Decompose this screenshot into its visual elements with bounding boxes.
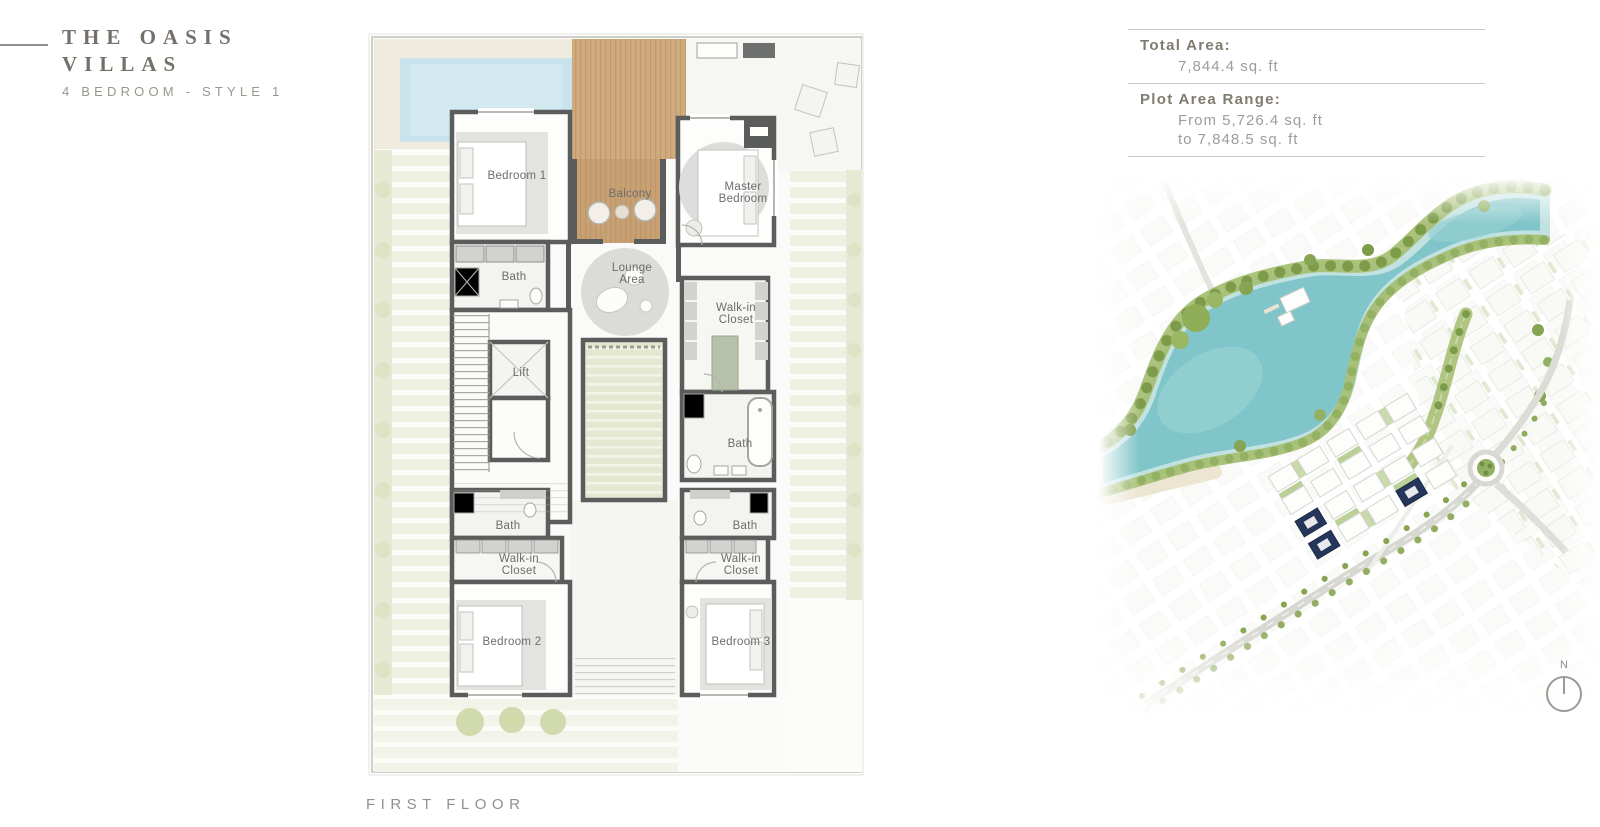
label-lift: Lift <box>513 367 530 379</box>
label-lounge-1: Lounge <box>612 262 652 274</box>
plot-area-label: Plot Area Range: <box>1140 91 1485 109</box>
floor-plan-svg: Bedroom 1 Balcony Master Bedroom Bath Lo… <box>368 33 868 777</box>
deck <box>572 39 686 159</box>
site-map-svg: N <box>1098 175 1600 715</box>
title-line1: THE OASIS <box>62 24 238 51</box>
floor-label: FIRST FLOOR <box>366 796 525 813</box>
plot-area-from: From 5,726.4 sq. ft <box>1178 111 1485 130</box>
balcony-table <box>615 205 629 219</box>
label-wic-left-2: Closet <box>502 565 537 577</box>
label-wic-right-1: Walk-in <box>721 553 761 565</box>
divider <box>1128 83 1485 84</box>
area-panel: Total Area: 7,844.4 sq. ft Plot Area Ran… <box>1128 29 1485 157</box>
page-subtitle: 4 BEDROOM - STYLE 1 <box>62 84 283 99</box>
label-bath-ll: Bath <box>496 520 521 532</box>
lift-lobby <box>490 398 548 460</box>
compass-n-label: N <box>1560 659 1568 671</box>
label-wic-master-2: Closet <box>719 314 754 326</box>
stairs <box>453 314 489 472</box>
label-bedroom1: Bedroom 1 <box>488 170 547 182</box>
page-title: THE OASIS VILLAS <box>62 24 238 78</box>
balcony <box>571 159 666 244</box>
divider <box>1128 29 1485 30</box>
roundabout <box>1470 452 1502 484</box>
label-bath-master: Bath <box>728 438 753 450</box>
divider <box>1128 156 1485 157</box>
label-balcony: Balcony <box>608 188 651 200</box>
central-zones <box>566 242 681 695</box>
label-wic-master-1: Walk-in <box>716 302 756 314</box>
courtyard <box>583 340 665 500</box>
label-wic-right-2: Closet <box>724 565 759 577</box>
label-lounge-2: Area <box>619 274 645 286</box>
balcony-chair <box>634 199 656 221</box>
total-area-label: Total Area: <box>1140 37 1485 55</box>
brochure-page: { "header": { "title_line1": "THE OASIS"… <box>0 0 1600 827</box>
label-wic-left-1: Walk-in <box>499 553 539 565</box>
accent-dash <box>0 44 48 46</box>
total-area-value: 7,844.4 sq. ft <box>1178 57 1485 76</box>
label-bath-top: Bath <box>502 271 527 283</box>
title-line2: VILLAS <box>62 51 238 78</box>
label-master-1: Master <box>725 181 762 193</box>
label-bedroom2: Bedroom 2 <box>483 636 542 648</box>
label-master-2: Bedroom <box>719 193 768 205</box>
balcony-chair <box>588 202 610 224</box>
label-bath-lr: Bath <box>733 520 758 532</box>
plot-area-to: to 7,848.5 sq. ft <box>1178 130 1485 149</box>
label-bedroom3: Bedroom 3 <box>712 636 771 648</box>
